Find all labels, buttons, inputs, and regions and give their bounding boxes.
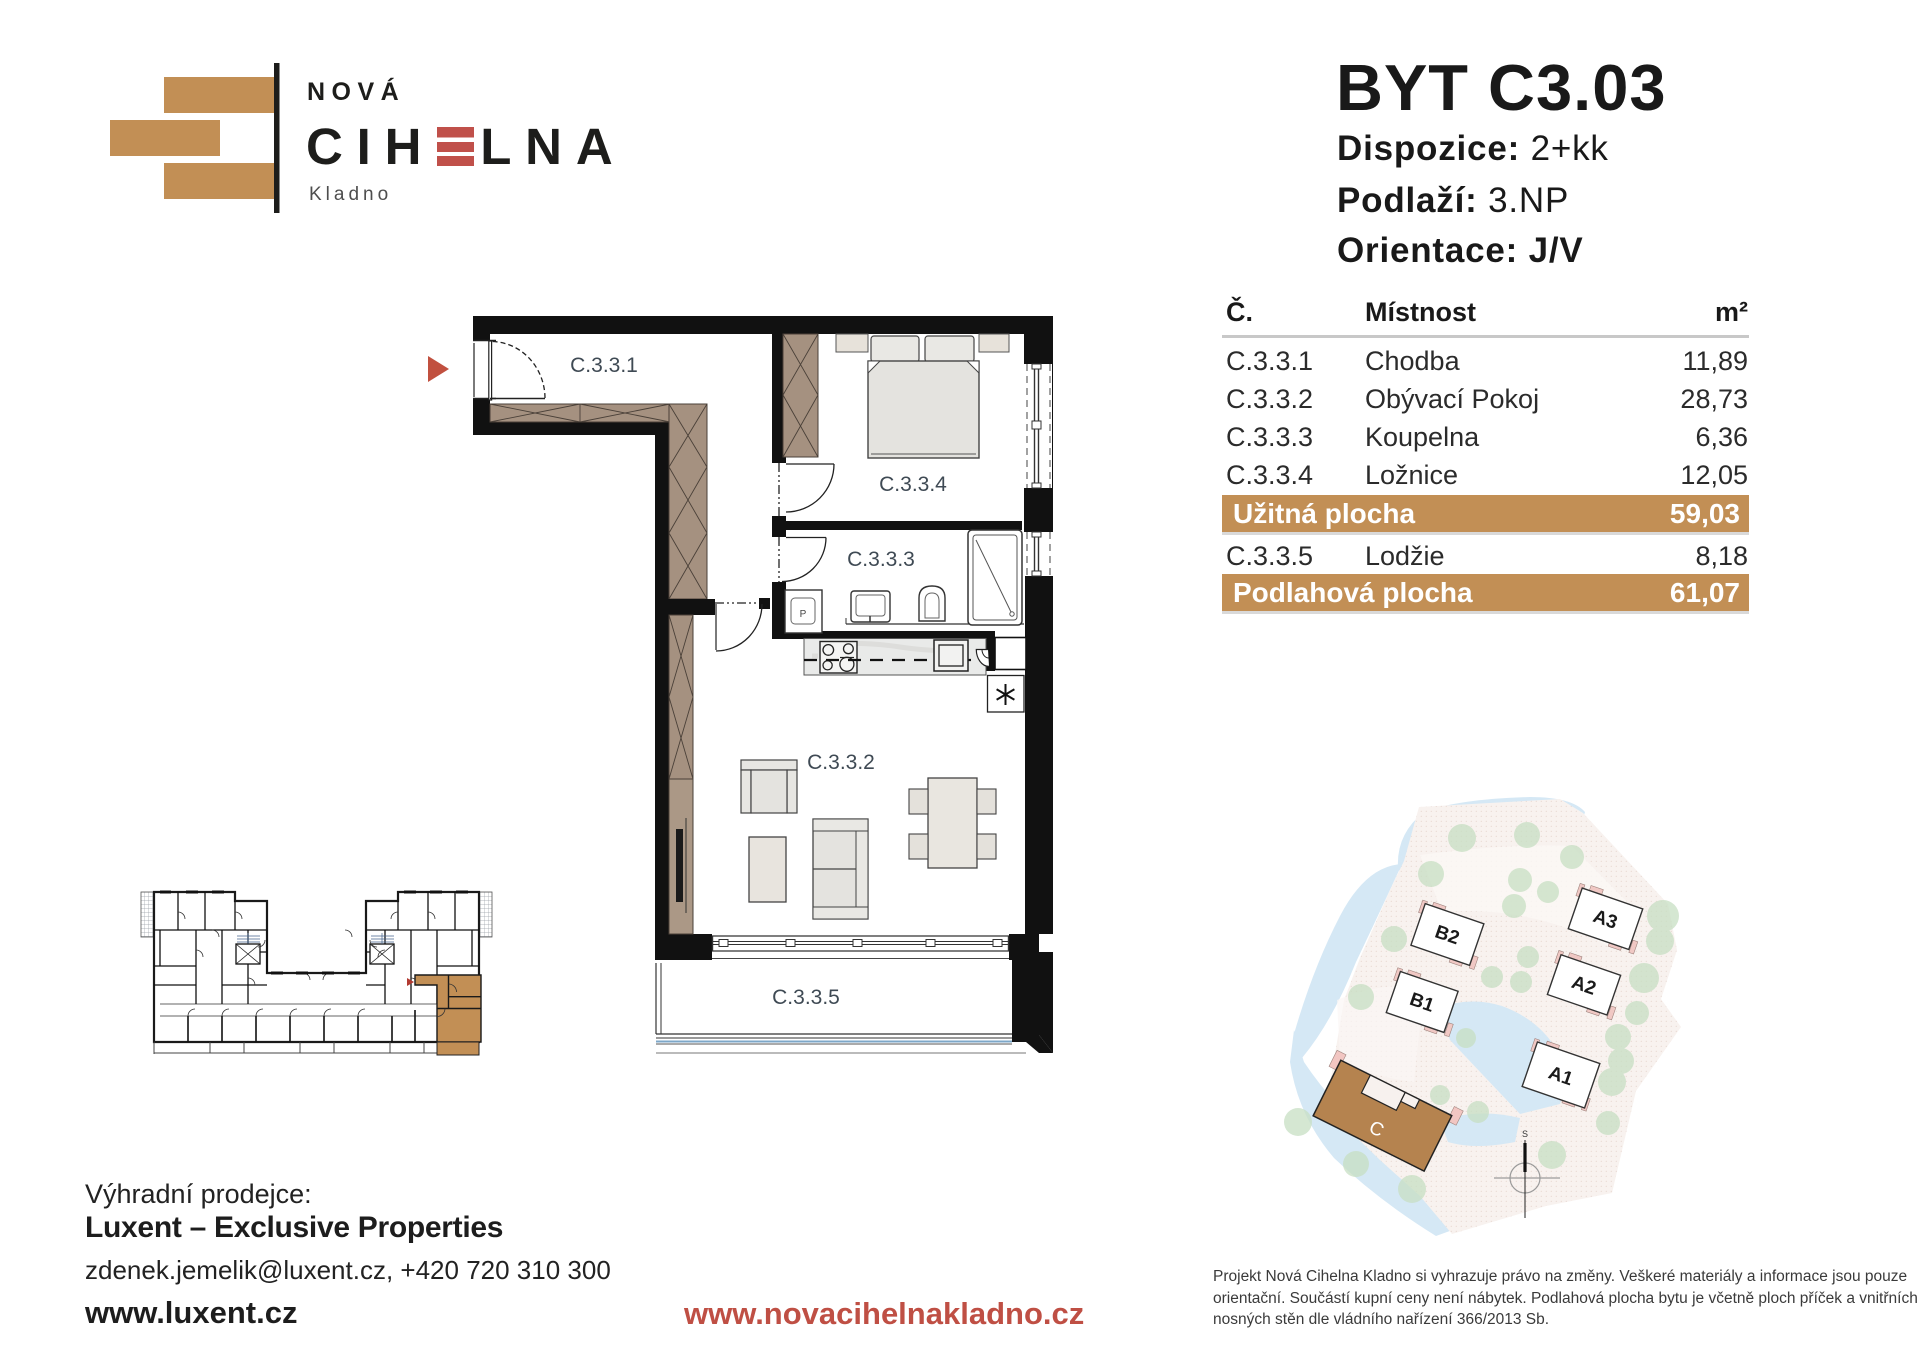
svg-text:C.3.3.1: C.3.3.1: [570, 354, 638, 377]
svg-text:C.3.3.5: C.3.3.5: [772, 986, 840, 1009]
svg-text:S: S: [1522, 1129, 1528, 1139]
svg-text:C.3.3.4: C.3.3.4: [879, 473, 947, 496]
svg-text:C.3.3.3: C.3.3.3: [847, 548, 915, 571]
svg-text:C.3.3.2: C.3.3.2: [807, 751, 875, 774]
svg-text:P: P: [800, 609, 807, 620]
